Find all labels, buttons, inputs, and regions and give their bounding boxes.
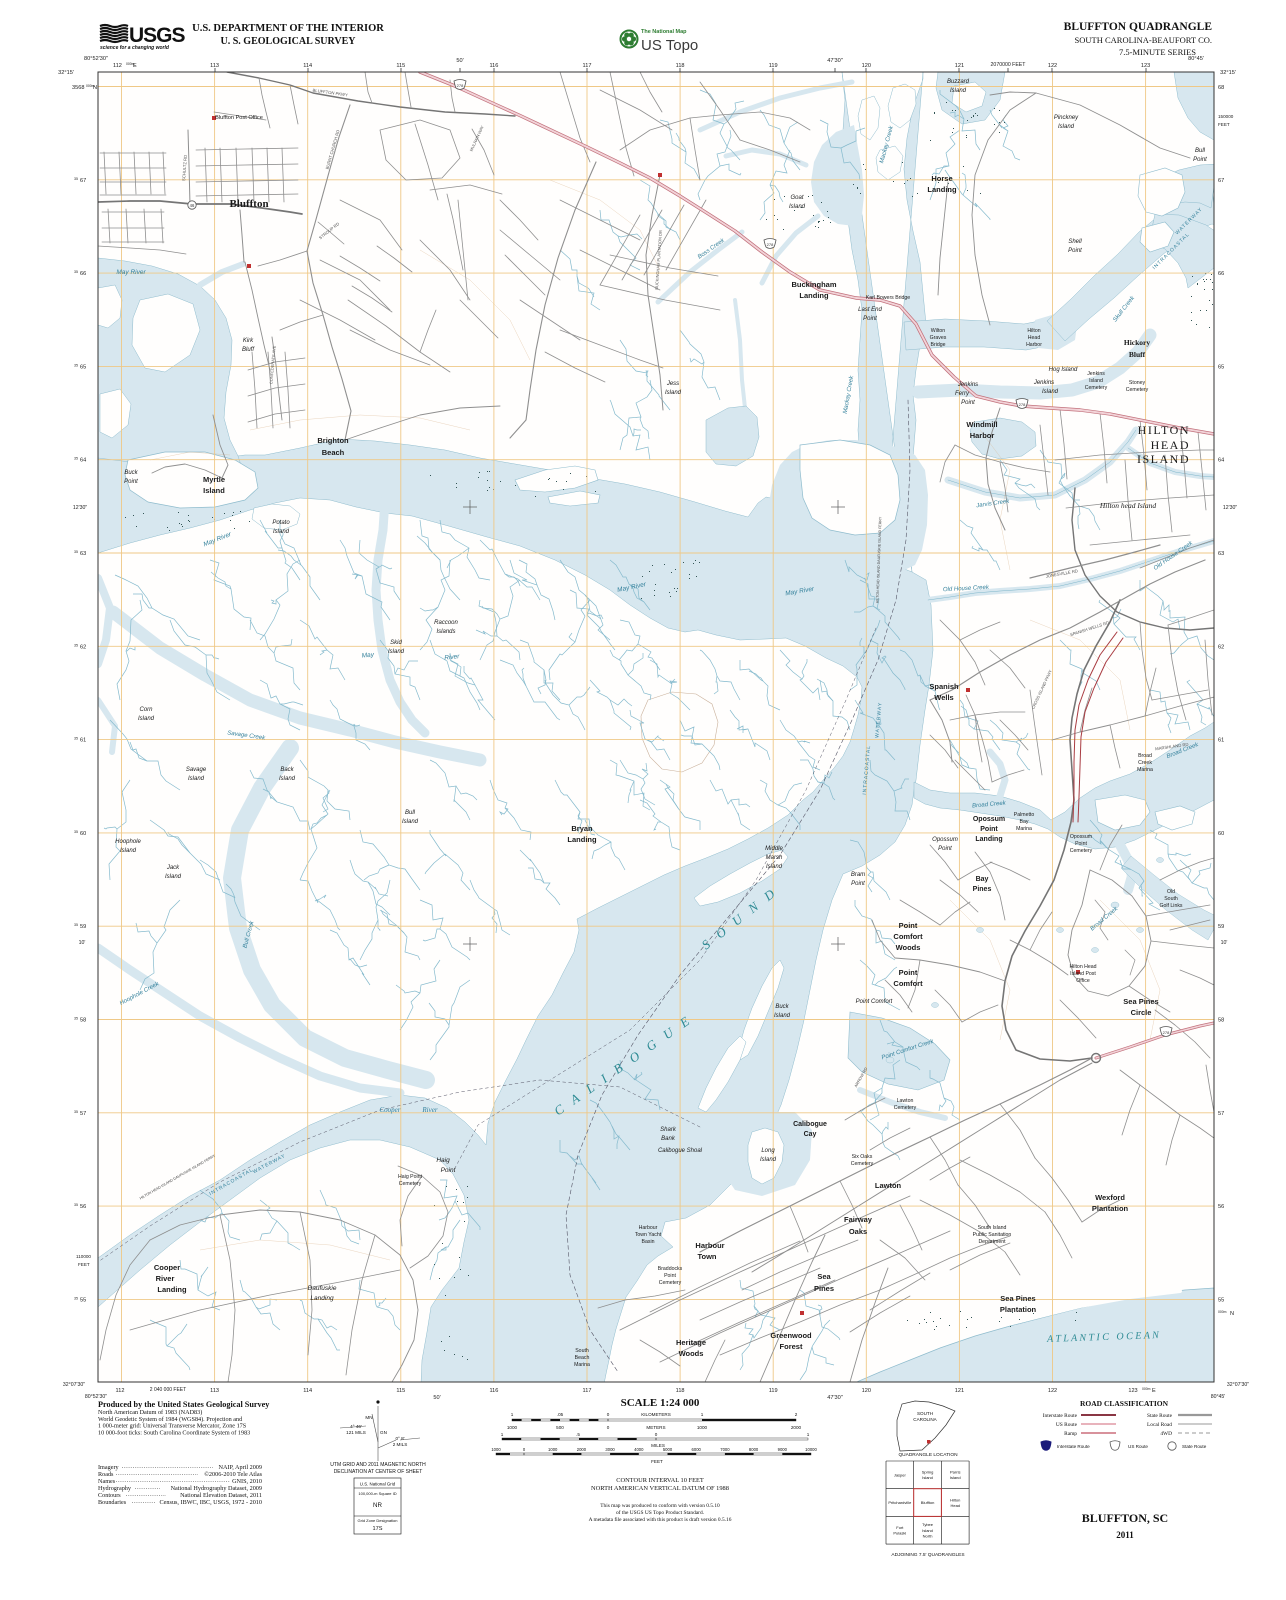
svg-text:61: 61 [1218, 738, 1224, 744]
svg-text:Bay: Bay [1020, 819, 1029, 825]
svg-text:Imagery: Imagery [98, 1464, 120, 1471]
svg-text:2 MILS: 2 MILS [393, 1442, 408, 1447]
svg-text:Jasper: Jasper [894, 1472, 907, 1477]
svg-text:65: 65 [80, 364, 86, 370]
svg-text:.05: .05 [557, 1412, 564, 1417]
svg-text:of the USGS US Topo Product St: of the USGS US Topo Product Standard. [616, 1509, 704, 1516]
svg-text:68: 68 [1218, 85, 1224, 91]
svg-text:North: North [923, 1533, 933, 1538]
svg-text:58: 58 [80, 1018, 86, 1024]
svg-text:Island Post: Island Post [1070, 971, 1096, 977]
svg-text:NAIP, April 2009: NAIP, April 2009 [219, 1464, 263, 1471]
svg-text:Point: Point [899, 921, 918, 930]
svg-text:Point: Point [938, 846, 952, 852]
svg-text:ISLAND: ISLAND [1137, 452, 1190, 466]
svg-text:Point: Point [124, 479, 138, 485]
svg-text:Savage: Savage [186, 767, 207, 773]
svg-text:Point: Point [1193, 157, 1207, 163]
svg-text:Cay: Cay [804, 1131, 817, 1138]
svg-text:35: 35 [74, 1110, 78, 1114]
svg-text:55: 55 [1218, 1297, 1224, 1303]
svg-text:HEAD: HEAD [1151, 438, 1190, 452]
svg-text:500: 500 [556, 1425, 564, 1430]
svg-text:Cooper: Cooper [154, 1263, 180, 1272]
svg-text:Island: Island [388, 649, 405, 655]
svg-text:12'30": 12'30" [1223, 505, 1238, 511]
svg-text:10': 10' [1221, 940, 1228, 946]
svg-text:Hydrography: Hydrography [98, 1485, 132, 1492]
svg-text:Pines: Pines [814, 1284, 834, 1293]
svg-text:3000: 3000 [605, 1447, 615, 1452]
svg-text:QUADRANGLE LOCATION: QUADRANGLE LOCATION [898, 1452, 958, 1458]
svg-text:Cemetery: Cemetery [851, 1161, 874, 1167]
svg-text:50': 50' [433, 1395, 440, 1401]
svg-text:60: 60 [80, 831, 86, 837]
svg-text:Point Comfort: Point Comfort [856, 999, 893, 1005]
svg-text:US Route: US Route [1128, 1444, 1148, 1449]
svg-text:Island: Island [402, 819, 419, 825]
svg-text:Roads: Roads [98, 1471, 114, 1478]
svg-text:59: 59 [80, 924, 86, 930]
svg-text:GNIS, 2010: GNIS, 2010 [232, 1478, 262, 1485]
svg-text:MN: MN [365, 1415, 372, 1420]
svg-text:Jenkins: Jenkins [1087, 371, 1105, 377]
svg-text:Harbor: Harbor [970, 431, 995, 440]
svg-text:Pines: Pines [973, 886, 992, 893]
svg-text:2070000 FEET: 2070000 FEET [991, 62, 1027, 68]
svg-text:Contours: Contours [98, 1492, 121, 1499]
svg-text:Fort: Fort [896, 1525, 904, 1530]
svg-text:57: 57 [80, 1111, 86, 1117]
svg-text:Buck: Buck [775, 1004, 789, 1010]
svg-text:Windmill: Windmill [966, 420, 997, 429]
svg-text:Bridge: Bridge [931, 342, 946, 348]
svg-text:Island: Island [273, 529, 290, 535]
svg-text:Produced by the United States: Produced by the United States Geological… [98, 1400, 270, 1409]
svg-text:Point: Point [961, 400, 975, 406]
svg-text:Raccoon: Raccoon [434, 620, 458, 626]
svg-text:35: 35 [74, 363, 78, 367]
svg-text:BLUFFTON, SC: BLUFFTON, SC [1082, 1511, 1168, 1525]
svg-text:Cemetery: Cemetery [1070, 848, 1093, 854]
svg-text:Local Road: Local Road [1147, 1422, 1172, 1428]
svg-text:Oaks: Oaks [849, 1227, 867, 1236]
svg-text:32°07'30": 32°07'30" [63, 1382, 85, 1388]
svg-text:Landing: Landing [975, 836, 1002, 843]
svg-text:64: 64 [80, 458, 86, 464]
svg-text:17S: 17S [373, 1526, 383, 1532]
svg-text:Harbour: Harbour [639, 1225, 658, 1231]
svg-text:Town: Town [697, 1252, 716, 1261]
svg-text:35: 35 [74, 830, 78, 834]
svg-text:56: 56 [1218, 1204, 1224, 1210]
svg-text:80°45': 80°45' [1188, 56, 1204, 62]
svg-text:Landing: Landing [157, 1285, 187, 1294]
svg-text:Cemetery: Cemetery [659, 1280, 682, 1286]
svg-text:Back: Back [280, 767, 294, 773]
svg-text:Island: Island [922, 1528, 933, 1533]
svg-text:32°07'30": 32°07'30" [1227, 1382, 1249, 1388]
svg-text:7000: 7000 [720, 1447, 730, 1452]
svg-text:Island: Island [279, 776, 296, 782]
svg-text:117: 117 [583, 1388, 592, 1394]
svg-text:47'30": 47'30" [827, 1395, 843, 1401]
svg-text:Woods: Woods [679, 1349, 704, 1358]
svg-text:278: 278 [1163, 1030, 1170, 1035]
svg-text:Point: Point [664, 1273, 676, 1279]
svg-text:Point: Point [851, 881, 865, 887]
svg-text:118: 118 [676, 1388, 685, 1394]
svg-text:1: 1 [807, 1432, 810, 1437]
svg-text:10 000-foot ticks: South Carol: 10 000-foot ticks: South Carolina Coordi… [98, 1429, 250, 1436]
svg-text:Marina: Marina [1137, 767, 1153, 773]
svg-text:May: May [361, 651, 375, 659]
svg-text:114: 114 [303, 1388, 312, 1394]
svg-text:Island: Island [120, 848, 137, 854]
svg-text:Point: Point [1068, 248, 1082, 254]
svg-text:State Route: State Route [1182, 1444, 1207, 1449]
svg-text:119: 119 [769, 1388, 778, 1394]
svg-text:115: 115 [396, 1388, 405, 1394]
svg-text:The National Map: The National Map [641, 29, 687, 35]
svg-text:122: 122 [1048, 1388, 1057, 1394]
svg-text:Bryan: Bryan [571, 824, 593, 833]
svg-text:Opossum: Opossum [1070, 834, 1092, 840]
svg-text:Kirk: Kirk [243, 338, 254, 344]
svg-text:NORTH AMERICAN VERTICAL DATUM: NORTH AMERICAN VERTICAL DATUM OF 1988 [591, 1485, 729, 1492]
svg-text:.5: .5 [576, 1432, 580, 1437]
svg-text:Island: Island [188, 776, 205, 782]
svg-text:Island: Island [1042, 389, 1059, 395]
svg-text:Plantation: Plantation [1000, 1305, 1037, 1314]
svg-text:Island: Island [138, 716, 155, 722]
svg-text:62: 62 [80, 644, 86, 650]
svg-text:Jenkins: Jenkins [957, 382, 978, 388]
svg-text:10': 10' [79, 940, 86, 946]
svg-text:Wexford: Wexford [1095, 1193, 1125, 1202]
svg-text:Braddocks: Braddocks [658, 1266, 683, 1272]
svg-text:Boundaries: Boundaries [98, 1499, 127, 1506]
svg-text:Heritage: Heritage [676, 1338, 706, 1347]
svg-text:Opossum: Opossum [973, 816, 1005, 823]
svg-text:63: 63 [1218, 551, 1224, 557]
svg-text:Pinckney: Pinckney [1054, 115, 1079, 121]
svg-text:Potato: Potato [272, 520, 290, 526]
svg-text:0: 0 [607, 1412, 610, 1417]
svg-text:Grid Zone Designation: Grid Zone Designation [357, 1518, 397, 1523]
svg-text:Daufuskie: Daufuskie [308, 1285, 337, 1292]
svg-text:46: 46 [190, 203, 195, 208]
svg-text:U.S. National Grid: U.S. National Grid [360, 1482, 396, 1487]
svg-text:47'30": 47'30" [827, 58, 843, 64]
svg-text:2011: 2011 [1116, 1530, 1134, 1540]
svg-text:35: 35 [74, 1017, 78, 1021]
svg-text:Island: Island [165, 874, 182, 880]
svg-text:Karl Bowers Bridge: Karl Bowers Bridge [866, 295, 911, 301]
svg-text:Sea Pines: Sea Pines [1123, 997, 1158, 1006]
svg-text:Department: Department [978, 1239, 1006, 1245]
svg-text:Creek: Creek [1138, 760, 1152, 766]
svg-text:Ferry: Ferry [955, 391, 970, 397]
svg-text:Comfort: Comfort [893, 979, 923, 988]
svg-text:278: 278 [767, 242, 774, 247]
svg-text:NR: NR [373, 1502, 382, 1509]
svg-text:Spring: Spring [922, 1470, 934, 1475]
svg-text:FEET: FEET [1218, 122, 1230, 127]
svg-text:Bank: Bank [661, 1136, 676, 1142]
svg-text:35: 35 [74, 643, 78, 647]
svg-text:KILOMETERS: KILOMETERS [641, 1412, 671, 1417]
svg-text:Calibogue: Calibogue [793, 1121, 827, 1128]
svg-text:Point: Point [980, 826, 998, 833]
svg-text:1: 1 [701, 1412, 704, 1417]
svg-text:66: 66 [80, 271, 86, 277]
svg-text:8000: 8000 [749, 1447, 759, 1452]
svg-text:2000: 2000 [577, 1447, 587, 1452]
svg-text:May River: May River [116, 269, 146, 276]
svg-text:000m: 000m [1142, 1387, 1151, 1391]
svg-text:HILTON: HILTON [1138, 423, 1190, 437]
svg-text:121: 121 [955, 63, 964, 69]
svg-text:Point: Point [1075, 841, 1087, 847]
svg-text:Horse: Horse [931, 174, 952, 183]
svg-text:U.S. DEPARTMENT OF THE INTERIO: U.S. DEPARTMENT OF THE INTERIOR [192, 23, 384, 34]
svg-text:3568: 3568 [72, 85, 84, 91]
svg-text:150000: 150000 [1218, 114, 1234, 119]
svg-text:Interstate Route: Interstate Route [1057, 1444, 1090, 1449]
svg-text:GN: GN [380, 1430, 387, 1435]
svg-text:ROAD CLASSIFICATION: ROAD CLASSIFICATION [1080, 1399, 1169, 1408]
svg-text:River: River [421, 1106, 437, 1114]
svg-text:Head: Head [1028, 335, 1041, 341]
svg-text:Islands: Islands [436, 629, 455, 635]
svg-text:Ramp: Ramp [1064, 1431, 1077, 1437]
svg-text:Haig Point: Haig Point [398, 1174, 422, 1180]
svg-text:Island: Island [760, 1157, 777, 1163]
svg-text:Island: Island [1058, 124, 1075, 130]
svg-text:67: 67 [1218, 178, 1224, 184]
svg-text:Corn: Corn [139, 707, 153, 713]
svg-text:N: N [1230, 1311, 1234, 1317]
svg-text:ADJOINING 7.5' QUADRANGLES: ADJOINING 7.5' QUADRANGLES [891, 1552, 964, 1558]
svg-text:METERS: METERS [646, 1425, 665, 1430]
svg-text:US Route: US Route [1056, 1422, 1078, 1428]
svg-text:Stoney: Stoney [1129, 380, 1146, 386]
svg-text:65: 65 [1218, 364, 1224, 370]
svg-text:Buck: Buck [124, 470, 138, 476]
svg-text:Names: Names [98, 1478, 116, 1485]
svg-text:Forest: Forest [780, 1342, 803, 1351]
svg-text:Landing: Landing [310, 1295, 334, 1302]
svg-text:Jess: Jess [666, 381, 679, 387]
svg-text:Public Sanitation: Public Sanitation [973, 1232, 1012, 1238]
svg-text:121: 121 [955, 1388, 964, 1394]
svg-text:Bluffton: Bluffton [229, 198, 268, 210]
svg-text:5000: 5000 [663, 1447, 673, 1452]
svg-text:Haig: Haig [436, 1157, 450, 1164]
svg-text:Comfort: Comfort [893, 932, 923, 941]
svg-text:35: 35 [74, 1296, 78, 1300]
svg-text:Palmetto: Palmetto [1014, 812, 1035, 818]
svg-text:61: 61 [80, 738, 86, 744]
svg-text:1000: 1000 [548, 1447, 558, 1452]
svg-text:Broad: Broad [1138, 753, 1152, 759]
svg-text:63: 63 [80, 551, 86, 557]
svg-text:Harbour: Harbour [695, 1241, 724, 1250]
svg-text:Buckingham: Buckingham [791, 280, 836, 289]
svg-text:80°52'30": 80°52'30" [84, 56, 108, 62]
svg-text:Point: Point [863, 316, 877, 322]
svg-text:1: 1 [511, 1412, 514, 1417]
svg-text:60: 60 [1218, 831, 1224, 837]
svg-text:35: 35 [74, 270, 78, 274]
svg-text:116: 116 [489, 1388, 498, 1394]
svg-text:Spanish: Spanish [929, 682, 959, 691]
svg-text:Shell: Shell [1068, 239, 1082, 245]
svg-text:112: 112 [116, 1388, 125, 1394]
svg-text:4WD: 4WD [1160, 1431, 1172, 1437]
svg-text:Marsh: Marsh [766, 855, 783, 861]
svg-text:Marina: Marina [574, 1362, 590, 1368]
svg-text:2000: 2000 [791, 1425, 802, 1430]
svg-text:CONTOUR INTERVAL 10 FEET: CONTOUR INTERVAL 10 FEET [616, 1477, 704, 1484]
svg-text:000m: 000m [1218, 1310, 1227, 1314]
svg-text:Graves: Graves [930, 335, 947, 341]
svg-text:science for a changing world: science for a changing world [100, 45, 170, 51]
svg-text:Island: Island [922, 1475, 933, 1480]
svg-text:Pritchardville: Pritchardville [888, 1500, 912, 1505]
svg-text:35: 35 [74, 923, 78, 927]
svg-text:SOUTH CAROLINA-BEAUFORT CO.: SOUTH CAROLINA-BEAUFORT CO. [1075, 35, 1212, 45]
svg-text:Landing: Landing [927, 185, 957, 194]
svg-text:Island: Island [203, 486, 225, 495]
svg-text:Interstate Route: Interstate Route [1043, 1413, 1078, 1419]
svg-text:120: 120 [862, 1388, 871, 1394]
svg-text:N: N [93, 85, 97, 91]
svg-text:Pulaski: Pulaski [893, 1531, 906, 1536]
svg-text:Sea: Sea [817, 1272, 831, 1281]
svg-text:Bram: Bram [851, 872, 865, 878]
svg-text:110000: 110000 [76, 1254, 91, 1259]
svg-text:Wilton: Wilton [931, 328, 946, 334]
svg-text:Tybee: Tybee [922, 1522, 934, 1527]
svg-text:55: 55 [80, 1297, 86, 1303]
svg-text:Hilton: Hilton [1027, 328, 1040, 334]
svg-text:CAROLINA: CAROLINA [913, 1417, 937, 1422]
svg-text:Island: Island [1089, 378, 1103, 384]
svg-text:Goat: Goat [790, 195, 803, 201]
svg-text:US Topo: US Topo [641, 37, 698, 54]
svg-text:100,000-m Square ID: 100,000-m Square ID [358, 1491, 396, 1496]
svg-text:National Elevation Dataset, 20: National Elevation Dataset, 2011 [180, 1492, 262, 1499]
svg-text:Skid: Skid [390, 640, 402, 646]
svg-text:Bull: Bull [1195, 148, 1206, 154]
svg-text:67: 67 [80, 178, 86, 184]
svg-text:1: 1 [501, 1432, 504, 1437]
svg-text:South: South [575, 1348, 589, 1354]
svg-text:Beach: Beach [322, 448, 345, 457]
svg-text:Census, IBWC, IBC, USGS, 1972: Census, IBWC, IBC, USGS, 1972 - 2010 [160, 1499, 262, 1506]
svg-text:Lawton: Lawton [897, 1098, 914, 1104]
svg-text:UTM GRID AND 2011 MAGNETIC NOR: UTM GRID AND 2011 MAGNETIC NORTH [330, 1462, 426, 1468]
svg-text:123: 123 [1128, 1388, 1137, 1394]
svg-text:SOUTH: SOUTH [917, 1411, 933, 1416]
svg-text:River: River [156, 1274, 175, 1283]
svg-text:1000: 1000 [697, 1425, 708, 1430]
svg-text:Greenwood: Greenwood [770, 1331, 812, 1340]
svg-text:Cemetery: Cemetery [1126, 387, 1149, 393]
svg-text:112: 112 [113, 63, 122, 69]
svg-text:Island: Island [774, 1013, 791, 1019]
svg-text:Hilton head Island: Hilton head Island [1099, 501, 1156, 510]
svg-text:Hickory: Hickory [1124, 338, 1150, 347]
svg-text:FEET: FEET [78, 1262, 90, 1267]
svg-text:This map was produced to confo: This map was produced to conform with ve… [600, 1502, 720, 1509]
svg-text:10000: 10000 [805, 1447, 817, 1452]
svg-text:Cooper: Cooper [380, 1106, 401, 1114]
svg-text:Landing: Landing [799, 291, 829, 300]
svg-text:Cemetery: Cemetery [894, 1105, 917, 1111]
svg-text:Bay: Bay [976, 876, 989, 883]
svg-text:Woods: Woods [896, 943, 921, 952]
svg-text:Old: Old [1167, 889, 1175, 895]
svg-text:4000: 4000 [634, 1447, 644, 1452]
svg-text:35: 35 [74, 1203, 78, 1207]
svg-text:Six Oaks: Six Oaks [852, 1154, 873, 1160]
svg-text:BLUFFTON QUADRANGLE: BLUFFTON QUADRANGLE [1064, 21, 1213, 33]
svg-text:122: 122 [1048, 63, 1057, 69]
svg-text:Hog Island: Hog Island [1049, 367, 1078, 373]
svg-text:Cemetery: Cemetery [1085, 385, 1108, 391]
svg-text:South Island: South Island [978, 1225, 1007, 1231]
svg-text:278: 278 [1019, 402, 1026, 407]
svg-text:56: 56 [80, 1204, 86, 1210]
svg-text:9000: 9000 [778, 1447, 788, 1452]
svg-text:278: 278 [457, 83, 464, 88]
svg-text:Bluffton Post Office: Bluffton Post Office [215, 115, 263, 121]
svg-text:Lawton: Lawton [875, 1181, 902, 1190]
svg-text:Bluff: Bluff [242, 347, 255, 353]
svg-text:Middle: Middle [765, 846, 783, 852]
svg-text:USGS: USGS [129, 24, 186, 47]
svg-text:Circle: Circle [1131, 1008, 1152, 1017]
svg-text:Myrtle: Myrtle [203, 475, 225, 484]
svg-text:6000: 6000 [692, 1447, 702, 1452]
svg-text:Harbor: Harbor [1026, 342, 1042, 348]
svg-text:Bluff: Bluff [1129, 350, 1146, 359]
svg-text:2: 2 [795, 1412, 798, 1417]
svg-text:35: 35 [74, 737, 78, 741]
svg-text:Point: Point [441, 1167, 457, 1174]
svg-text:Point: Point [899, 968, 918, 977]
svg-text:Calibogue Shoal: Calibogue Shoal [658, 1148, 703, 1154]
svg-text:0: 0 [607, 1425, 610, 1430]
svg-text:Hoophole: Hoophole [115, 839, 141, 845]
svg-text:Basin: Basin [642, 1239, 655, 1245]
svg-text:Head: Head [950, 1503, 960, 1508]
svg-text:Office: Office [1076, 978, 1090, 984]
svg-text:2 040 000 FEET: 2 040 000 FEET [150, 1387, 186, 1393]
svg-text:Sea Pines: Sea Pines [1000, 1294, 1035, 1303]
svg-text:35: 35 [74, 457, 78, 461]
svg-text:57: 57 [1218, 1111, 1224, 1117]
svg-text:4° 46': 4° 46' [350, 1424, 362, 1429]
svg-text:62: 62 [1218, 644, 1224, 650]
svg-text:Jenkins: Jenkins [1033, 380, 1054, 386]
svg-text:80°45': 80°45' [1211, 1394, 1226, 1400]
svg-text:Last End: Last End [858, 307, 882, 313]
svg-text:113: 113 [210, 1388, 219, 1394]
